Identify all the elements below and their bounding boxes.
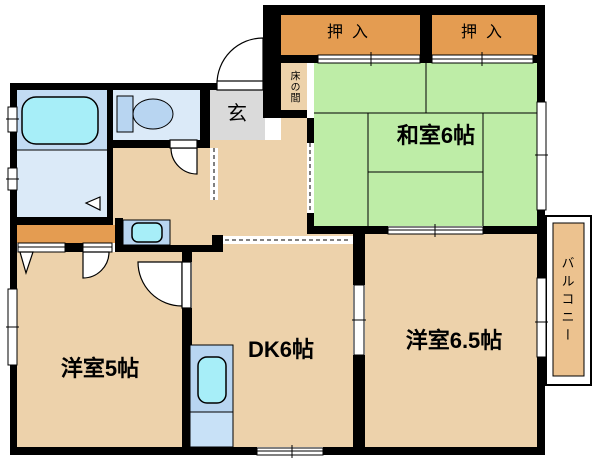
entrance-door-leaf (217, 81, 263, 90)
toilet-door-leaf (170, 140, 197, 148)
bathtub-icon (22, 97, 98, 144)
floorplan: 押入 押入 和室6帖 床の間 玄 DK6帖 洋室5帖 洋室6.5帖 バルコニー (0, 0, 600, 464)
toilet-tank-icon (117, 96, 133, 132)
genkan-label: 玄 (227, 104, 247, 124)
balcony-label: バルコニー (561, 256, 574, 346)
toilet-bowl-icon (133, 99, 173, 129)
closet-left-label: 押入 (327, 25, 377, 41)
tokonoma-label: 床の間 (288, 71, 298, 104)
kitchen-sink-icon (198, 357, 226, 403)
entrance-door-arc-icon (217, 38, 263, 84)
closet-right-label: 押入 (461, 25, 511, 41)
washing-machine-icon (132, 223, 162, 242)
floorplan-canvas (0, 0, 600, 464)
western65-window (537, 278, 546, 357)
washitsu-label: 和室6帖 (397, 125, 475, 147)
washroom-floor (17, 150, 107, 218)
room5-closet-floor (17, 225, 115, 243)
washitsu-window (537, 102, 546, 210)
dk-label: DK6帖 (248, 339, 314, 361)
western65-label: 洋室6.5帖 (406, 330, 503, 352)
hall-floor (281, 118, 307, 148)
western5-door-leaf (182, 262, 191, 308)
western5-label: 洋室5帖 (61, 358, 139, 380)
kitchen-counter-low-icon (190, 412, 233, 447)
